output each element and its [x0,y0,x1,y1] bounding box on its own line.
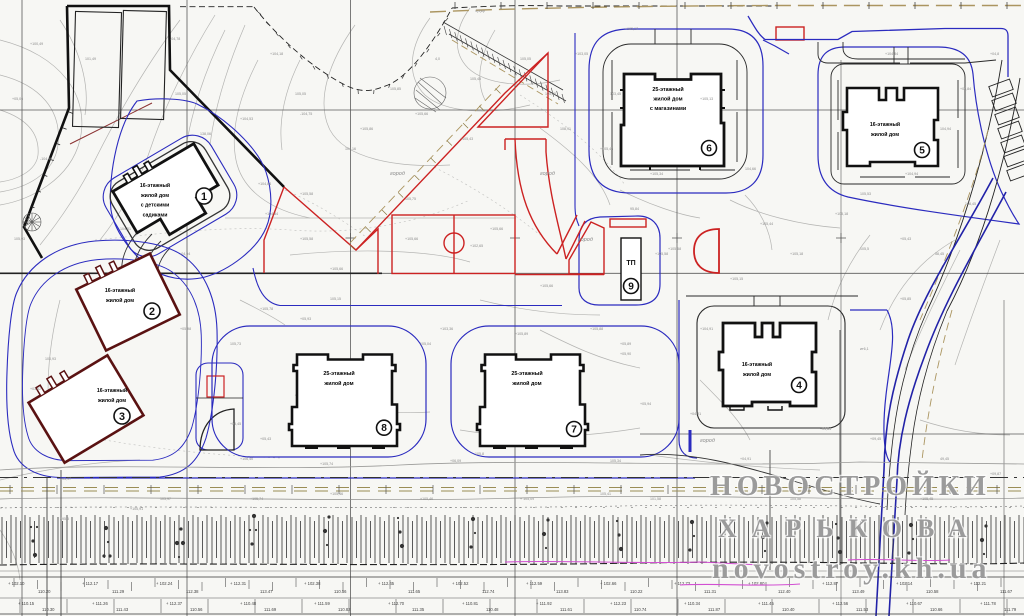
svg-text:105,41: 105,41 [600,492,611,496]
svg-text:105,73: 105,73 [230,342,241,346]
svg-text:+104,91: +104,91 [700,327,713,331]
svg-text:город: город [390,171,405,177]
svg-text:novostroy.kh.ua: novostroy.kh.ua [712,552,992,585]
svg-text:113.47: 113.47 [260,589,273,594]
svg-text:104,94: 104,94 [940,127,951,131]
svg-text:105,8: 105,8 [475,452,484,456]
svg-text:город: город [540,171,555,177]
svg-text:ит6,1: ит6,1 [860,347,869,351]
svg-text:город: город [700,438,715,444]
svg-text:111.53: 111.53 [856,607,869,612]
svg-text:+ 102.66: + 102.66 [600,581,617,586]
svg-text:105,85: 105,85 [390,87,401,91]
svg-text:НОВОСТРОЙКИ: НОВОСТРОЙКИ [710,471,991,502]
svg-text:+105,66: +105,66 [330,267,343,271]
svg-text:104,66: 104,66 [745,167,756,171]
svg-text:4(5)кр: 4(5)кр [475,9,485,13]
svg-text:105,45: 105,45 [470,77,481,81]
svg-text:+104,84: +104,84 [258,182,271,186]
svg-text:+105,66: +105,66 [540,284,553,288]
svg-text:-04,78: -04,78 [170,37,180,41]
svg-text:+105,58: +105,58 [655,252,668,256]
svg-text:113.49: 113.49 [852,589,865,594]
svg-text:+105,58: +105,58 [300,192,313,196]
svg-text:+105,43: +105,43 [460,137,473,141]
svg-text:+ 110.34: + 110.34 [684,601,701,606]
svg-text:49,45: 49,45 [940,457,949,461]
svg-text:+ 112.59: + 112.59 [526,581,543,586]
svg-text:103,45: 103,45 [610,92,621,96]
svg-text:105,53: 105,53 [860,192,871,196]
svg-text:+ 112.37: + 112.37 [166,601,183,606]
svg-text:+105,88: +105,88 [590,327,603,331]
svg-text:+04,84: +04,84 [820,427,831,431]
svg-text:+05,93: +05,93 [300,317,311,321]
svg-text:111.79: 111.79 [1004,607,1017,612]
svg-text:+105,66: +105,66 [415,112,428,116]
svg-text:+05,90: +05,90 [620,352,631,356]
svg-text:+04,91: +04,91 [740,457,751,461]
svg-text:+103,05: +103,05 [575,52,588,56]
svg-text:111.69: 111.69 [264,607,277,612]
svg-text:110.40: 110.40 [782,607,795,612]
svg-text:110.66: 110.66 [930,607,943,612]
svg-text:+104,53: +104,53 [240,117,253,121]
svg-text:105,05: 105,05 [520,57,531,61]
svg-text:+ 110.81: + 110.81 [462,601,479,606]
svg-text:+05,89: +05,89 [620,342,631,346]
svg-text:+104,18: +104,18 [270,52,283,56]
svg-text:+105,46: +105,46 [420,497,433,501]
svg-text:+105,13: +105,13 [700,97,713,101]
svg-text:9: 9 [628,282,634,293]
svg-text:+ 110.67: + 110.67 [906,601,923,606]
svg-text:111.65: 111.65 [408,589,421,594]
svg-text:112.40: 112.40 [778,589,791,594]
svg-text:+105,74: +105,74 [250,497,263,501]
svg-text:+ 102.10: + 102.10 [8,581,25,586]
svg-text:105,93: 105,93 [14,237,25,241]
svg-text:95,84: 95,84 [630,207,639,211]
svg-text:+ 105,09: + 105,09 [520,497,534,501]
svg-text:ТП: ТП [626,260,635,267]
svg-text:5: 5 [919,146,925,157]
svg-text:+103,36: +103,36 [440,327,453,331]
svg-text:111.35: 111.35 [412,607,425,612]
svg-text:+05,06: +05,06 [12,97,23,101]
svg-text:+105,91: +105,91 [130,507,143,511]
svg-text:113.83: 113.83 [556,589,569,594]
svg-text:+104,84: +104,84 [265,212,278,216]
svg-text:103,93: 103,93 [45,357,56,361]
svg-text:+ 111.26: + 111.26 [92,601,108,606]
svg-text:104,51: 104,51 [120,227,131,231]
svg-text:6: 6 [706,144,712,155]
svg-text:108,45: 108,45 [965,202,976,206]
svg-text:2: 2 [149,306,155,318]
svg-text:+04,8: +04,8 [990,52,999,56]
svg-text:105,05: 105,05 [545,92,556,96]
svg-text:+102,65: +102,65 [470,244,483,248]
svg-text:-104,75: -104,75 [300,112,312,116]
svg-text:1: 1 [201,191,207,203]
svg-text:112.38: 112.38 [186,589,199,594]
svg-text:+ 102.24: + 102.24 [156,581,173,586]
svg-text:110.48: 110.48 [486,607,499,612]
svg-text:+105,18: +105,18 [790,252,803,256]
svg-text:7: 7 [571,425,577,436]
svg-text:105,05: 105,05 [175,92,186,96]
svg-text:+105,78: +105,78 [260,307,273,311]
svg-text:111.61: 111.61 [560,607,573,612]
svg-text:+ 110.15: + 110.15 [18,601,35,606]
svg-text:+05,98: +05,98 [180,327,191,331]
svg-text:+105,58: +105,58 [300,237,313,241]
svg-text:+ 111.92: + 111.92 [536,601,552,606]
svg-text:+04,91: +04,91 [690,412,701,416]
svg-text:+105,15: +105,15 [730,277,743,281]
svg-text:4: 4 [796,381,802,392]
svg-text:+05,94: +05,94 [640,402,651,406]
svg-text:+ 112.31: + 112.31 [230,581,247,586]
svg-text:110.20: 110.20 [38,589,51,594]
svg-text:105,15: 105,15 [330,297,341,301]
svg-text:8: 8 [381,423,387,434]
svg-text:110.56: 110.56 [190,607,203,612]
svg-text:+104,84: +104,84 [885,52,898,56]
svg-text:138,06: 138,06 [200,132,211,136]
svg-text:111.43: 111.43 [116,607,129,612]
svg-text:+105,43: +105,43 [600,147,613,151]
svg-text:108,91: 108,91 [560,127,571,131]
svg-text:495,5: 495,5 [60,517,69,521]
svg-text:+ 110.48: + 110.48 [240,601,257,606]
svg-text:104,16: 104,16 [345,147,356,151]
svg-text:+ 111.78: + 111.78 [980,601,996,606]
svg-text:+105,86: +105,86 [360,127,373,131]
svg-text:25-этажныйжилой домс магазинам: 25-этажныйжилой домс магазинами [650,86,686,112]
svg-text:105,04: 105,04 [420,342,431,346]
svg-text:105,34: 105,34 [610,459,621,463]
svg-text:110.30: 110.30 [42,607,55,612]
svg-text:105,75: 105,75 [405,197,416,201]
svg-text:+05,85: +05,85 [900,297,911,301]
svg-text:+105,74: +105,74 [320,462,333,466]
svg-text:+09,45: +09,45 [870,437,881,441]
svg-text:+05,43: +05,43 [260,437,271,441]
svg-text:110.74: 110.74 [634,607,647,612]
svg-text:+105,66: +105,66 [490,227,503,231]
svg-text:-04,04: -04,04 [180,252,190,256]
svg-text:+105,58: +105,58 [668,247,681,251]
svg-text:+105,18: +105,18 [835,212,848,216]
svg-text:+ 112.70: + 112.70 [388,601,405,606]
svg-text:+ 102.38: + 102.38 [304,581,321,586]
svg-text:105,5: 105,5 [860,247,869,251]
svg-text:110.22: 110.22 [630,589,643,594]
svg-text:58,45: 58,45 [935,252,944,256]
svg-text:+05,97: +05,97 [60,477,71,481]
svg-text:105,05: 105,05 [295,92,306,96]
svg-text:ХАРЬКОВА: ХАРЬКОВА [718,514,982,543]
svg-text:110.56: 110.56 [334,589,347,594]
svg-text:+105,89: +105,89 [515,332,528,336]
svg-text:+05,45: +05,45 [230,422,241,426]
svg-text:+ 111.59: + 111.59 [314,601,330,606]
svg-text:101,58: 101,58 [650,497,661,501]
svg-text:+104,94: +104,94 [905,172,918,176]
svg-text:+05,43: +05,43 [900,237,911,241]
svg-text:101,49: 101,49 [85,57,96,61]
svg-text:+ 112.23: + 112.23 [610,601,627,606]
svg-text:+105,34: +105,34 [650,172,663,176]
svg-text:105,97: 105,97 [160,497,171,501]
svg-text:110.58: 110.58 [926,589,939,594]
svg-text:+04,84: +04,84 [960,87,971,91]
svg-text:-104,96: -104,96 [40,157,52,161]
svg-text:+105,46: +105,46 [330,492,343,496]
svg-text:+105,17: +105,17 [625,27,638,31]
svg-text:город: город [578,237,593,243]
svg-text:111.67: 111.67 [1000,589,1013,594]
svg-text:+105,66: +105,66 [405,237,418,241]
svg-text:+ 112.45: + 112.45 [378,581,395,586]
svg-text:+106,40: +106,40 [240,457,253,461]
svg-text:4,0: 4,0 [435,57,440,61]
svg-text:111.29: 111.29 [112,589,125,594]
svg-text:+105,44: +105,44 [760,222,773,226]
svg-text:+06,09: +06,09 [450,459,461,463]
svg-text:111.87: 111.87 [708,607,721,612]
svg-text:+03,52: +03,52 [30,387,41,391]
svg-text:+ 112.56: + 112.56 [832,601,849,606]
svg-text:111.31: 111.31 [704,589,717,594]
svg-text:+09,87: +09,87 [990,472,1001,476]
svg-text:+100,49: +100,49 [30,42,43,46]
svg-text:3: 3 [119,411,125,423]
